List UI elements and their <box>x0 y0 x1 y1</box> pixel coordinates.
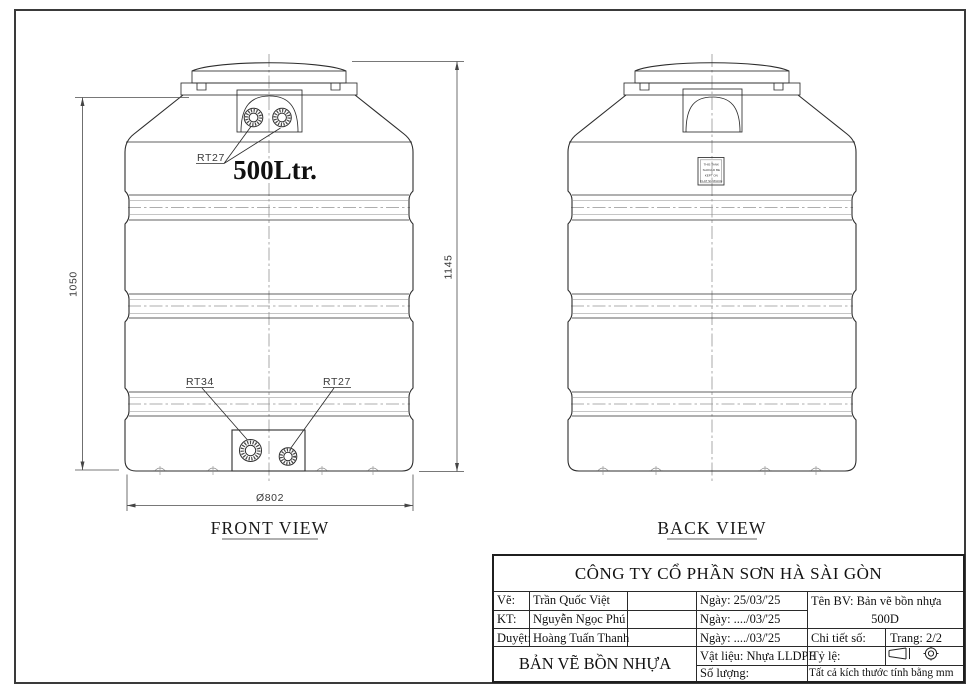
date-ve: Ngày: 25/03/'25 <box>700 591 780 609</box>
detail-no-label: Chi tiết số: <box>811 629 866 647</box>
back-top-panel <box>683 89 742 132</box>
page-label: Trang: 2/2 <box>890 629 942 647</box>
name-ve: Trần Quốc Việt <box>533 591 610 609</box>
back-top-arch <box>686 97 740 132</box>
plate-line-2: SHOULD BE <box>703 168 720 172</box>
label-rt34: RT34 <box>186 376 214 388</box>
dim-text-diameter: Ø802 <box>256 492 284 504</box>
back-view-caption: BACK VIEW <box>657 518 766 538</box>
date-duyet: Ngày: ..../03/'25 <box>700 629 780 647</box>
dimension-diameter: Ø802 <box>127 475 413 512</box>
front-view-caption: FRONT VIEW <box>211 518 330 538</box>
third-angle-projection-icon <box>885 646 949 661</box>
scale-label: Tỷ lệ: <box>811 647 841 665</box>
company-name: CÔNG TY CỔ PHẦN SƠN HÀ SÀI GÒN <box>494 556 963 591</box>
label-rt27-top: RT27 <box>197 152 225 164</box>
volume-label: 500Ltr. <box>233 155 317 185</box>
plate-line-1: THIS TANK <box>704 163 719 167</box>
plate-line-3: KEPT ON <box>705 174 718 178</box>
bottom-fitting-rt34 <box>240 440 262 462</box>
units-note: Tất cả kích thước tính bằng mm <box>809 665 953 681</box>
drawing-sheet: RT27 500Ltr. RT34 RT27 1050 1145 Ø802 FR… <box>0 0 980 693</box>
dim-text-1050: 1050 <box>68 271 80 297</box>
front-tank-outline <box>125 54 413 483</box>
date-kt: Ngày: ..../03/'25 <box>700 610 780 628</box>
label-rt27-bottom: RT27 <box>323 376 351 388</box>
back-tank-outline <box>568 54 856 483</box>
projection-symbol-cell <box>885 646 963 664</box>
title-block: CÔNG TY CỔ PHẦN SƠN HÀ SÀI GÒN Vẽ: Trần … <box>492 554 965 683</box>
plate-line-4: FLAT SURFACE <box>700 179 722 183</box>
name-duyet: Hoàng Tuấn Thanh <box>533 629 629 647</box>
name-kt: Nguyễn Ngọc Phú <box>533 610 625 628</box>
dim-text-1145: 1145 <box>443 255 455 280</box>
sheet-title: BẢN VẼ BỒN NHỰA <box>494 646 696 681</box>
titleblock-divider <box>696 591 697 681</box>
material-label: Vật liệu: Nhựa LLDPE <box>700 647 816 665</box>
role-kt: KT: <box>497 610 517 628</box>
quantity-label: Số lượng: <box>700 665 749 681</box>
titleblock-divider <box>807 591 808 681</box>
role-ve: Vẽ: <box>497 591 515 609</box>
role-duyet: Duyệt: <box>497 629 531 647</box>
warning-plate: THIS TANK SHOULD BE KEPT ON FLAT SURFACE <box>698 158 724 186</box>
model-code: 500D <box>807 610 963 628</box>
dimension-total-height: 1145 <box>352 62 464 472</box>
drawing-name: Tên BV: Bản vẽ bồn nhựa <box>811 592 941 610</box>
top-fitting-right <box>273 108 292 127</box>
top-fitting-left <box>244 108 263 127</box>
bottom-fitting-rt27 <box>279 448 297 466</box>
